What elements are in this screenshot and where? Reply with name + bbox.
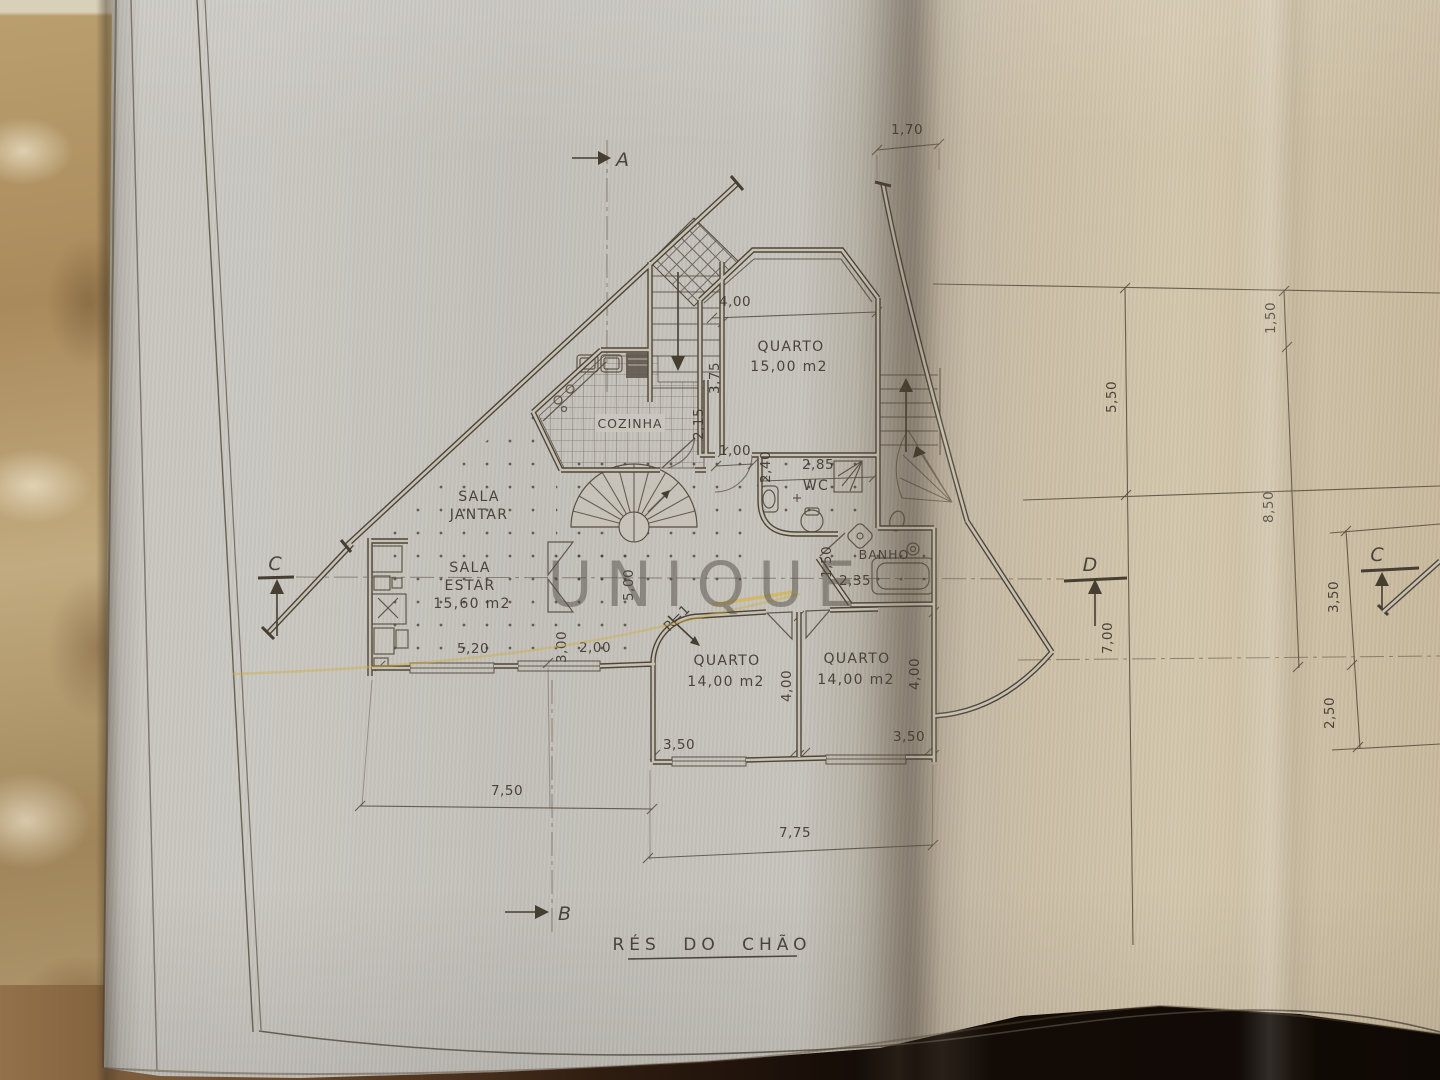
room-label-kitchen: COZINHA <box>597 416 662 431</box>
room-area-bedroom-right: 14,00 m2 <box>817 672 894 688</box>
dim-3-75: 3,75 <box>707 362 723 394</box>
side-dim-2-50: 2,50 <box>1322 697 1338 729</box>
section-label-a: A <box>614 149 629 171</box>
room-label-living-1: SALA <box>449 560 491 576</box>
room-label-bedroom-top: QUARTO <box>758 339 825 355</box>
room-area-bedroom-top: 15,00 m2 <box>750 359 827 375</box>
dim-4-00-top: 4,00 <box>719 294 751 310</box>
room-area-bedroom-left: 14,00 m2 <box>687 674 764 690</box>
side-dim-1-50: 1,50 <box>1263 302 1279 334</box>
dim-2-40: 2,40 <box>758 451 774 483</box>
watermark-text: UNIQUE <box>547 548 868 621</box>
room-label-living-2: ESTAR <box>444 578 495 594</box>
side-dim-3-50: 3,50 <box>1326 581 1342 613</box>
side-dim-8-50: 8,50 <box>1261 491 1277 523</box>
photo-of-blueprint: A B C D C QUARTO 15,00 m2 COZINHA WC BAN… <box>0 0 1440 1080</box>
room-label-bedroom-left: QUARTO <box>694 653 761 669</box>
floor-plan-drawing: A B C D C QUARTO 15,00 m2 COZINHA WC BAN… <box>0 0 1440 1080</box>
side-dim-5-50: 5,50 <box>1104 381 1120 413</box>
dim-4-00-right: 4,00 <box>907 658 923 690</box>
room-label-wc: WC <box>803 478 829 494</box>
room-label-dining-2: JANTAR <box>449 507 509 523</box>
side-dim-7-00: 7,00 <box>1100 622 1116 654</box>
dim-1-00: 1,00 <box>719 443 751 459</box>
sheet-edges-and-frame <box>103 0 1440 1074</box>
dim-7-75: 7,75 <box>779 825 811 841</box>
dim-2-85: 2,85 <box>802 457 834 473</box>
dim-5-20: 5,20 <box>457 641 489 657</box>
dim-3-50-left: 3,50 <box>663 737 695 753</box>
plan-title: RÉS DO CHÃO <box>613 933 812 955</box>
dim-4-00-mid: 4,00 <box>779 670 795 702</box>
room-area-living: 15,60 m2 <box>433 596 510 612</box>
section-label-d: D <box>1083 554 1098 576</box>
dim-3-50-right: 3,50 <box>893 729 925 745</box>
section-label-c: C <box>268 553 282 575</box>
dim-7-50: 7,50 <box>491 783 523 799</box>
dim-1-70: 1,70 <box>891 122 923 138</box>
title-underline <box>628 956 797 959</box>
room-label-dining-1: SALA <box>458 489 500 505</box>
section-label-c-right: C <box>1370 544 1384 566</box>
section-label-b: B <box>558 903 571 925</box>
room-label-bedroom-right: QUARTO <box>824 651 891 667</box>
dim-2-15: 2,15 <box>691 408 707 440</box>
